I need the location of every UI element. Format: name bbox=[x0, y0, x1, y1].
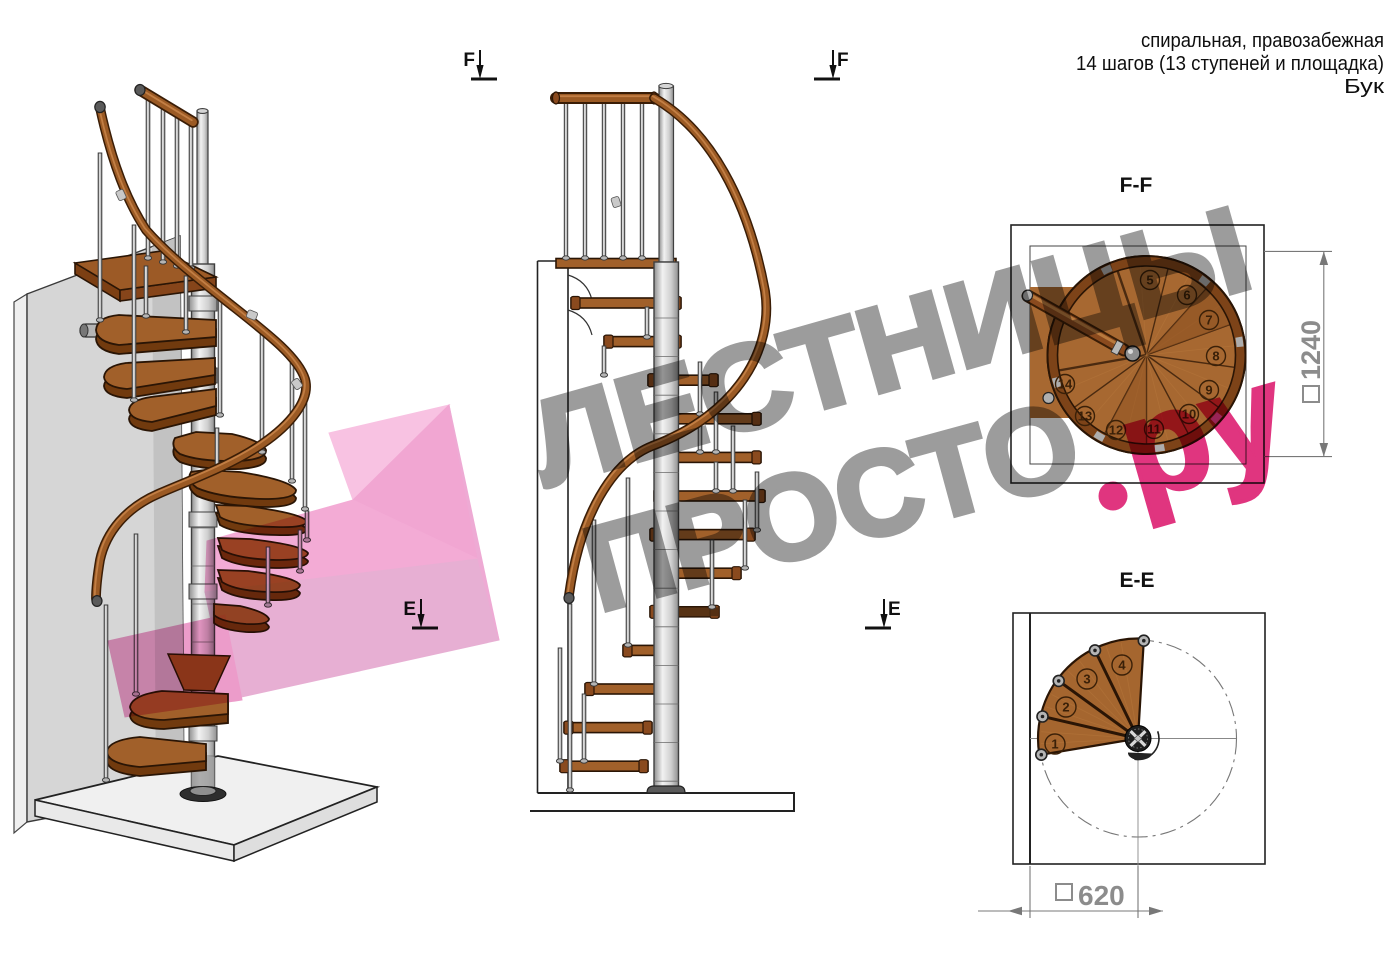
svg-text:13: 13 bbox=[1078, 409, 1092, 424]
svg-text:E: E bbox=[888, 599, 901, 620]
svg-text:2: 2 bbox=[1062, 700, 1069, 715]
svg-text:14 шагов (13 ступеней и площад: 14 шагов (13 ступеней и площадка) bbox=[1076, 52, 1384, 75]
svg-text:F: F bbox=[837, 50, 849, 71]
svg-text:E-E: E-E bbox=[1119, 569, 1154, 592]
svg-text:F: F bbox=[463, 50, 475, 71]
svg-text:1240: 1240 bbox=[1296, 320, 1326, 380]
svg-text:1: 1 bbox=[1051, 737, 1058, 752]
svg-text:3: 3 bbox=[1083, 672, 1090, 687]
svg-text:F-F: F-F bbox=[1120, 174, 1153, 197]
svg-text:Бук: Бук bbox=[1344, 75, 1385, 98]
svg-text:620: 620 bbox=[1078, 880, 1125, 911]
svg-text:4: 4 bbox=[1118, 658, 1126, 673]
svg-text:спиральная, правозабежная: спиральная, правозабежная bbox=[1141, 29, 1384, 52]
